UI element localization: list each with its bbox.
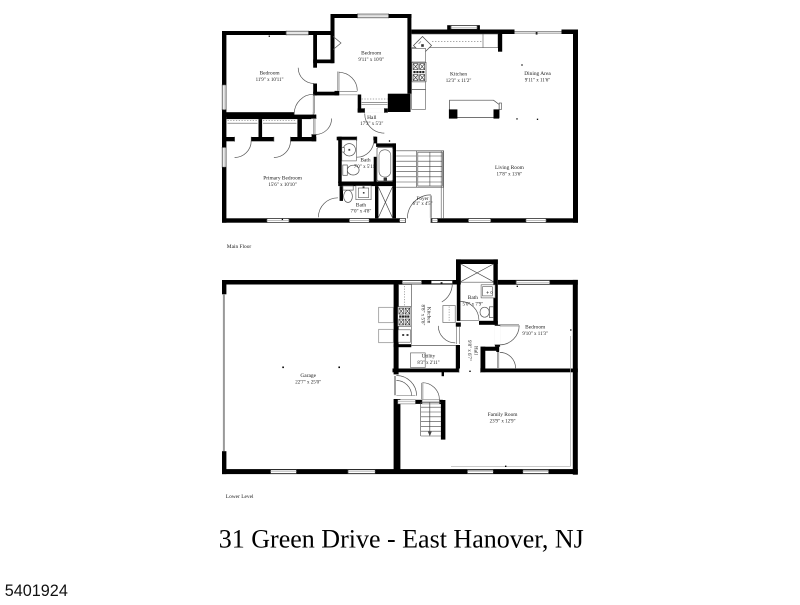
svg-text:Living Room: Living Room [495,165,525,171]
svg-text:Family Room: Family Room [488,412,519,418]
svg-text:22'7" x 25'0": 22'7" x 25'0" [295,381,321,386]
svg-text:Foyer: Foyer [417,196,429,202]
svg-text:8'8" x 5'6": 8'8" x 5'6" [420,305,425,326]
svg-text:12'3" x 11'2": 12'3" x 11'2" [446,79,472,84]
svg-text:11'9" x 10'11": 11'9" x 10'11" [256,78,284,83]
svg-text:5'0" x 7'9": 5'0" x 7'9" [462,303,483,308]
svg-text:Utility: Utility [422,354,436,360]
svg-text:Main Floor: Main Floor [227,244,252,250]
svg-text:5401924: 5401924 [5,582,68,600]
svg-text:9'10" x 11'3": 9'10" x 11'3" [522,332,548,337]
svg-text:Bedroom: Bedroom [361,51,382,57]
svg-text:6'1" x 4'5": 6'1" x 4'5" [413,202,433,207]
svg-text:Bath: Bath [356,202,366,208]
svg-text:Hall: Hall [367,115,377,121]
svg-text:7'0" x 5'11": 7'0" x 5'11" [354,165,377,170]
svg-text:8'3" x 2'11": 8'3" x 2'11" [417,361,439,366]
svg-text:7'0" x 4'8": 7'0" x 4'8" [351,210,372,215]
svg-text:17'8" x 13'6": 17'8" x 13'6" [496,172,522,177]
svg-text:Garage: Garage [300,373,316,379]
svg-text:Primary Bedroom: Primary Bedroom [263,176,303,182]
svg-text:9'8" x 6'7": 9'8" x 6'7" [466,340,471,361]
svg-text:Bedroom: Bedroom [260,70,281,76]
svg-text:Bath: Bath [468,295,478,301]
svg-text:15'6" x 10'10": 15'6" x 10'10" [268,183,296,188]
svg-text:9'11" x 10'0": 9'11" x 10'0" [358,58,384,63]
svg-text:Lower Level: Lower Level [226,494,254,500]
svg-text:23'9" x 12'9": 23'9" x 12'9" [490,419,516,424]
svg-text:Dining Area: Dining Area [524,71,551,77]
svg-text:Kitchen: Kitchen [425,307,431,324]
svg-text:17'3" x 5'3": 17'3" x 5'3" [360,122,383,127]
svg-text:Bath: Bath [360,157,370,163]
svg-text:9'11" x 11'6": 9'11" x 11'6" [525,79,551,84]
svg-text:Hall: Hall [473,346,479,355]
svg-text:Bedroom: Bedroom [525,325,546,331]
svg-text:31 Green Drive - East Hanover,: 31 Green Drive - East Hanover, NJ [219,525,584,554]
svg-text:Kitchen: Kitchen [450,71,467,77]
